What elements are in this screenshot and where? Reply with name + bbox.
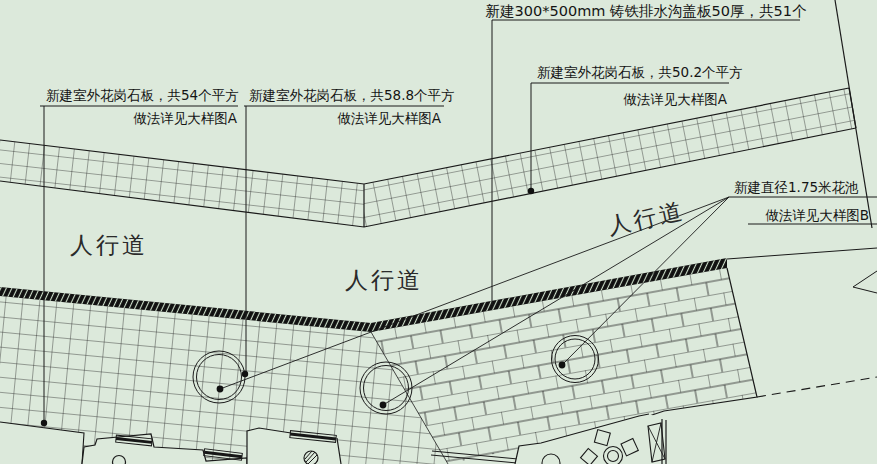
annotation-granite-588-line2: 做法详见大样图A [337, 110, 442, 126]
label-sidewalk-left: 人行道 [70, 232, 148, 258]
annotation-flowerbed-line2: 做法详见大样图B [765, 207, 869, 223]
annotation-granite-588-line1: 新建室外花岗石板，共58.8个平方 [249, 87, 455, 103]
leader-dot [559, 362, 566, 369]
site-plan-drawing: 新建300*500mm 铸铁排水沟盖板50厚，共51个 新建室外花岗石板，共54… [0, 0, 877, 464]
leader-dot [41, 420, 47, 426]
leader-dot [380, 402, 387, 409]
label-sidewalk-middle: 人行道 [345, 267, 423, 293]
annotation-granite-502-line1: 新建室外花岗石板，共50.2个平方 [537, 64, 743, 80]
cad-site-plan-canvas: 新建300*500mm 铸铁排水沟盖板50厚，共51个 新建室外花岗石板，共54… [0, 0, 877, 464]
leader-dot [528, 188, 534, 194]
annotation-flowerbed-line1: 新建直径1.75米花池 [734, 179, 859, 195]
annotation-granite-54-line2: 做法详见大样图A [133, 110, 238, 126]
leader-dot [217, 386, 224, 393]
annotation-granite-502-line2: 做法详见大样图A [623, 91, 728, 107]
leader-dot [242, 371, 248, 377]
annotation-drain-cover: 新建300*500mm 铸铁排水沟盖板50厚，共51个 [486, 3, 807, 19]
annotation-granite-54-line1: 新建室外花岗石板，共54个平方 [46, 87, 239, 103]
